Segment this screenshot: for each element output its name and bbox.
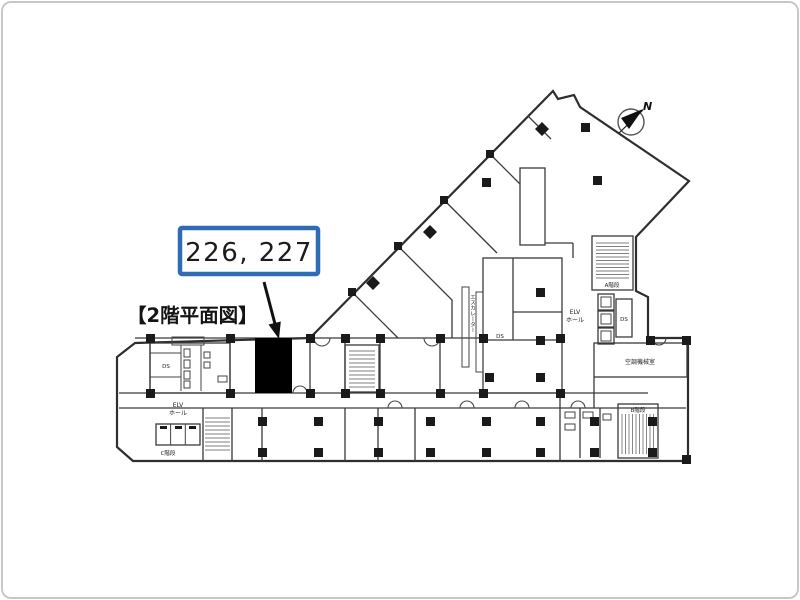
interior-walls	[119, 116, 686, 461]
floor-plan-page: DS ELV ホール C階段 DS エスカレーター ELV ホール DS A階段…	[0, 0, 800, 600]
callout-label: 226, 227	[185, 238, 313, 268]
compass-needle	[621, 109, 643, 129]
stairs-c-label: C階段	[161, 449, 176, 457]
elv-hall-right-label-2: ホール	[566, 317, 584, 324]
floor-title: 【2階平面図】	[127, 304, 258, 327]
stairs-a-box	[592, 236, 633, 290]
ds-center-label: DS	[496, 334, 504, 340]
callout-arrow	[264, 282, 281, 339]
central-core-block	[483, 258, 562, 393]
escalator-label: エスカレーター	[469, 294, 476, 333]
elv-hall-left-label-2: ホール	[169, 410, 187, 417]
callout: 226, 227	[180, 228, 318, 274]
elv-hall-right-label-1: ELV	[570, 309, 581, 316]
highlighted-unit-226-227	[255, 338, 292, 393]
compass-north-label: N	[643, 100, 652, 113]
upper-shaft	[520, 168, 545, 245]
arrow-head	[269, 322, 281, 340]
elv-hall-left-label-1: ELV	[173, 402, 184, 409]
stairs-a-label: A階段	[605, 281, 620, 289]
elevator-bank-right	[598, 294, 614, 344]
fixtures	[184, 349, 611, 430]
compass: N	[618, 100, 652, 135]
stairs-b-label: B階段	[631, 406, 646, 414]
machine-room-label: 空調機械室	[625, 358, 655, 366]
stairs-d-box	[345, 345, 379, 392]
ds-left-label: DS	[162, 364, 170, 370]
elevator-bank-left	[156, 424, 200, 445]
ds-right-label: DS	[620, 317, 628, 323]
diamond-columns	[366, 122, 549, 290]
floor-plan-canvas: DS ELV ホール C階段 DS エスカレーター ELV ホール DS A階段…	[0, 0, 800, 600]
